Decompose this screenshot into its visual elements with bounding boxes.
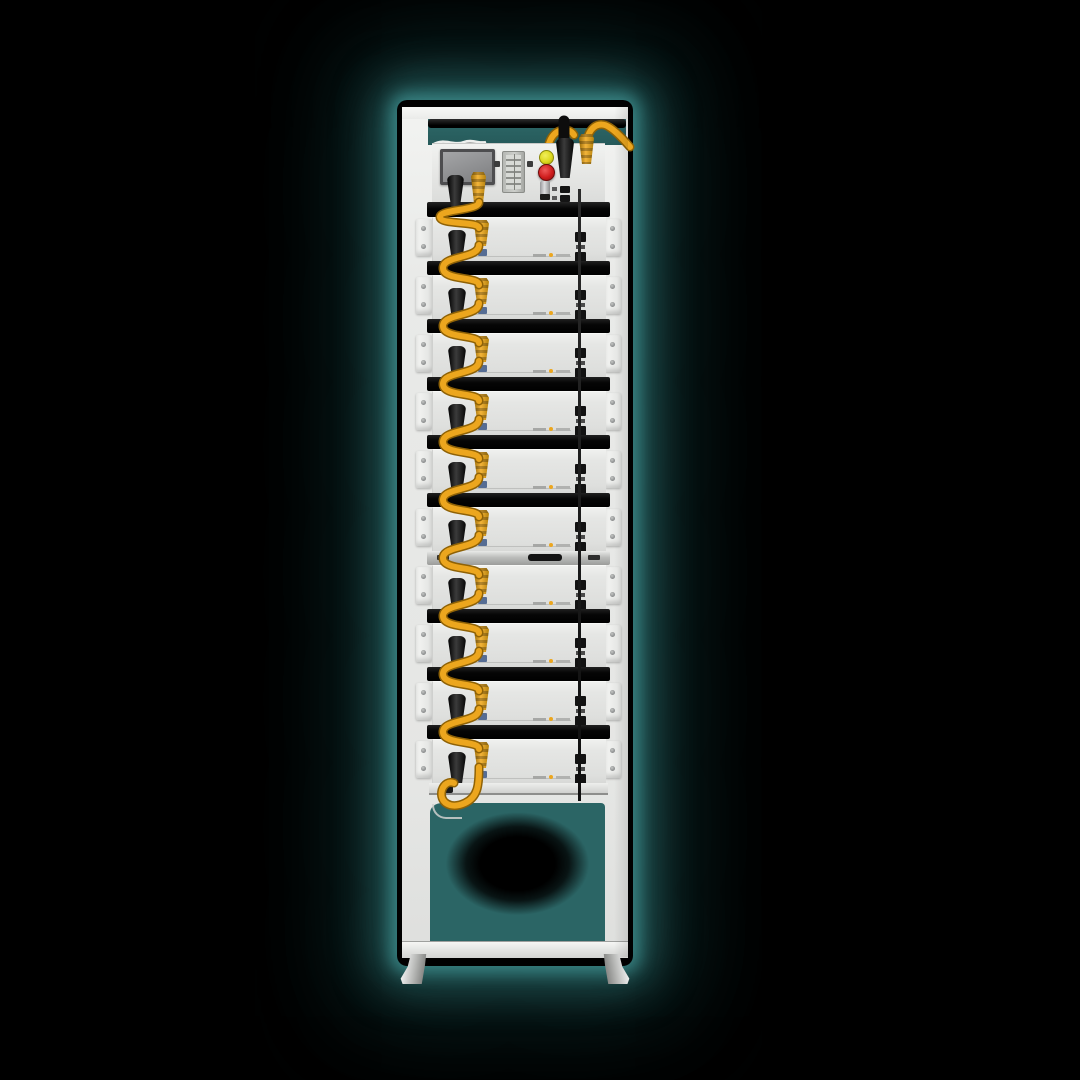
screw-icon — [610, 592, 615, 597]
link-cable — [432, 641, 502, 707]
screw-icon — [421, 534, 426, 539]
screw-icon — [610, 244, 615, 249]
fuse-holder — [540, 181, 550, 200]
screw-icon — [421, 708, 426, 713]
link-cable — [432, 196, 502, 236]
brand-dot-icon — [549, 717, 553, 721]
link-connector — [579, 134, 594, 164]
screw-icon — [421, 360, 426, 365]
mounting-ear-left — [416, 567, 432, 604]
screw-icon — [421, 302, 426, 307]
signal-lamp-yellow — [539, 150, 554, 165]
label-text — [533, 776, 546, 779]
label-text — [556, 602, 570, 605]
screw-icon — [610, 400, 615, 405]
screw-icon — [610, 708, 615, 713]
emergency-stop-button — [538, 164, 555, 181]
screw-icon — [610, 360, 615, 365]
module-stack — [402, 217, 628, 797]
link-cable — [432, 583, 502, 649]
brand-dot-icon — [549, 427, 553, 431]
port-mark — [552, 196, 557, 200]
link-cable — [432, 235, 502, 301]
mounting-ear-left — [416, 277, 432, 314]
screw-icon — [610, 766, 615, 771]
label-text — [556, 486, 570, 489]
label-text — [533, 254, 546, 257]
label-text — [533, 544, 546, 547]
top-opening — [428, 119, 626, 145]
mounting-ear-left — [416, 741, 432, 778]
screw-icon — [610, 476, 615, 481]
mounting-ear-right — [605, 451, 621, 488]
link-cable — [432, 351, 502, 417]
mounting-ear-right — [605, 741, 621, 778]
comm-port-upper — [560, 186, 570, 193]
brand-dot-icon — [549, 659, 553, 663]
screw-icon — [610, 632, 615, 637]
label-text — [556, 370, 570, 373]
brand-dot-icon — [549, 775, 553, 779]
mounting-ear-right — [605, 683, 621, 720]
link-cable — [432, 409, 502, 475]
screw-icon — [421, 226, 426, 231]
label-text — [556, 428, 570, 431]
label-text — [533, 602, 546, 605]
screw-icon — [610, 418, 615, 423]
screw-icon — [421, 748, 426, 753]
screw-icon — [421, 766, 426, 771]
screw-icon — [421, 476, 426, 481]
label-text — [533, 660, 546, 663]
handle-bar — [528, 554, 562, 561]
brand-dot-icon — [549, 601, 553, 605]
screw-icon — [610, 690, 615, 695]
screw-icon — [421, 342, 426, 347]
power-connector — [556, 138, 574, 178]
port-mark — [527, 161, 533, 167]
label-text — [533, 370, 546, 373]
brand-dot-icon — [549, 485, 553, 489]
screw-icon — [610, 302, 615, 307]
mounting-ear-left — [416, 451, 432, 488]
screw-icon — [610, 284, 615, 289]
mounting-ear-right — [605, 567, 621, 604]
label-text — [556, 312, 570, 315]
screw-icon — [421, 400, 426, 405]
screw-icon — [421, 574, 426, 579]
label-text — [533, 486, 546, 489]
mounting-ear-left — [416, 219, 432, 256]
label-text — [533, 428, 546, 431]
comm-port-lower — [560, 195, 570, 202]
brand-dot-icon — [549, 369, 553, 373]
brand-dot-icon — [549, 253, 553, 257]
brand-dot-icon — [549, 543, 553, 547]
label-text — [556, 660, 570, 663]
screw-icon — [610, 650, 615, 655]
bottom-frame-bar — [402, 941, 628, 958]
brand-dot-icon — [549, 311, 553, 315]
label-text — [533, 312, 546, 315]
screw-icon — [421, 592, 426, 597]
mounting-ear-right — [605, 219, 621, 256]
link-cable — [432, 293, 502, 359]
port-mark — [494, 161, 500, 167]
mounting-ear-left — [416, 335, 432, 372]
screw-icon — [421, 244, 426, 249]
screw-icon — [610, 748, 615, 753]
mounting-ear-right — [605, 509, 621, 546]
port-mark — [552, 187, 557, 191]
mounting-ear-right — [605, 277, 621, 314]
mounting-ear-left — [416, 683, 432, 720]
label-text — [556, 544, 570, 547]
screw-icon — [421, 650, 426, 655]
screw-icon — [421, 690, 426, 695]
screw-icon — [421, 458, 426, 463]
label-text — [533, 718, 546, 721]
battery-rack — [402, 107, 628, 957]
mounting-ear-right — [605, 335, 621, 372]
screw-icon — [421, 632, 426, 637]
link-cable — [432, 765, 502, 831]
mounting-ear-right — [605, 393, 621, 430]
scene — [0, 0, 1080, 1080]
mounting-ear-left — [416, 509, 432, 546]
screw-icon — [421, 418, 426, 423]
screw-icon — [421, 284, 426, 289]
link-cable — [432, 467, 502, 533]
link-cable — [432, 525, 502, 591]
screw-icon — [610, 458, 615, 463]
screw-icon — [610, 516, 615, 521]
screw-icon — [610, 226, 615, 231]
screw-icon — [610, 574, 615, 579]
link-cable — [432, 699, 502, 765]
screw-icon — [610, 534, 615, 539]
label-text — [556, 776, 570, 779]
screw-icon — [610, 342, 615, 347]
label-text — [556, 254, 570, 257]
screw-icon — [421, 516, 426, 521]
mounting-ear-left — [416, 625, 432, 662]
label-text — [556, 718, 570, 721]
terminal-block — [502, 151, 525, 193]
mounting-ear-left — [416, 393, 432, 430]
comm-daisy-chain-cable — [578, 189, 581, 801]
mounting-ear-right — [605, 625, 621, 662]
